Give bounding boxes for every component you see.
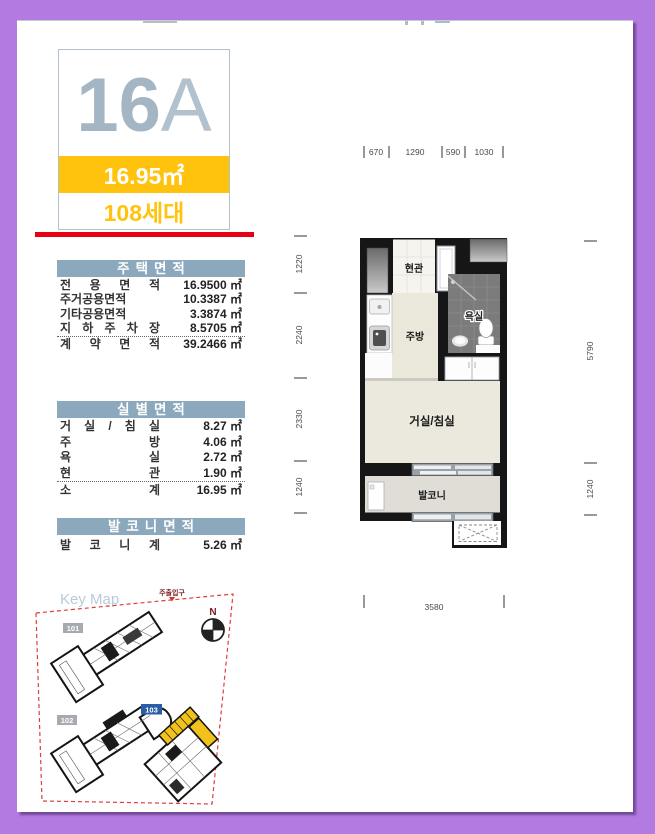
row-value: 8.27 ㎡ (203, 417, 242, 434)
cropped-text-remnant (421, 21, 424, 25)
closet-unit (367, 248, 388, 293)
table-row: 지 하 주 차 장 8.5705 ㎡ (57, 321, 245, 336)
dim-right-0: 5790 (585, 341, 595, 360)
sink-icon (452, 335, 469, 347)
balcony-area-table-title: 발코니면적 (57, 518, 245, 535)
row-label: 거 실 / 침 실 (60, 417, 160, 434)
building-102-label: 102 (61, 716, 74, 725)
dim-left-1: 2240 (294, 325, 304, 344)
row-label: 현 관 (60, 464, 160, 481)
outdoor-unit-bay (452, 521, 507, 548)
table-row: 거 실 / 침 실 8.27 ㎡ (57, 418, 245, 434)
row-value: 2.72 ㎡ (203, 448, 242, 465)
balcony-area-table: 발코니면적 발 코 니 계 5.26 ㎡ (57, 518, 245, 554)
row-value: 16.95 ㎡ (197, 481, 242, 498)
main-entrance-label: 주출입구 (159, 588, 185, 597)
row-label: 소 계 (60, 481, 160, 498)
row-value: 4.06 ㎡ (203, 433, 242, 450)
table-row: 욕 실 2.72 ㎡ (57, 449, 245, 465)
dim-right-1: 1240 (585, 479, 595, 498)
cropped-text-remnant (143, 21, 177, 23)
entrance-label: 현관 (405, 262, 424, 275)
row-label: 주 방 (60, 433, 160, 450)
table-row-total: 소 계 16.95 ㎡ (57, 481, 245, 497)
kitchen-counter (367, 295, 392, 353)
ac-unit-box (470, 239, 507, 262)
red-underline (35, 232, 254, 237)
table-row: 발 코 니 계 5.26 ㎡ (57, 535, 245, 554)
entrance-arrow-icon (169, 597, 175, 602)
unit-type-letter: A (161, 50, 212, 162)
dim-left-3: 1240 (294, 477, 304, 496)
cropped-text-remnant (435, 21, 450, 23)
row-value: 39.2466 ㎡ (183, 335, 242, 352)
housing-area-table: 주택면적 전 용 면 적 16.9500 ㎡ 주거공용면적 10.3387 ㎡ … (57, 260, 245, 351)
dim-left-2: 2330 (294, 409, 304, 428)
bath-mat (476, 345, 500, 353)
unit-info-box: 16A 16.95㎡ 108세대 (58, 49, 230, 230)
key-map: Key Map 주출입구 N 101 (30, 586, 260, 811)
key-map-title: Key Map (60, 591, 119, 608)
row-label: 욕 실 (60, 448, 160, 465)
room-area-table: 실별면적 거 실 / 침 실 8.27 ㎡ 주 방 4.06 ㎡ 욕 실 2.7… (57, 401, 245, 497)
kitchen-label: 주방 (406, 330, 425, 343)
unit-type-number: 16 (76, 50, 161, 162)
table-row-total: 계 약 면 적 39.2466 ㎡ (57, 336, 245, 351)
building-103-label: 103 (145, 706, 158, 715)
building-101-label: 101 (67, 624, 80, 633)
floor-plan: 670 1290 590 1030 1220 2240 2330 1240 57… (280, 131, 640, 621)
cropped-text-remnant (405, 21, 408, 25)
fridge-space (365, 353, 392, 381)
washer-space (368, 482, 384, 510)
dim-top-2: 590 (446, 147, 460, 157)
unit-household-count: 108세대 (59, 193, 229, 230)
dim-top-0: 670 (369, 147, 383, 157)
housing-area-table-title: 주택면적 (57, 260, 245, 277)
dimension-ticks-left (294, 236, 307, 513)
row-value: 8.5705 ㎡ (190, 319, 242, 336)
row-value: 1.90 ㎡ (203, 464, 242, 481)
shower-icon (451, 280, 455, 284)
dim-bottom-0: 3580 (425, 602, 444, 612)
living-room-label: 거실/침실 (409, 414, 455, 428)
balcony-label: 발코니 (418, 489, 446, 502)
row-label: 발 코 니 계 (60, 536, 160, 553)
table-row: 현 관 1.90 ㎡ (57, 465, 245, 481)
room-area-table-title: 실별면적 (57, 401, 245, 418)
balcony-window (412, 464, 493, 476)
building-101-footprint (51, 604, 168, 702)
dim-top-1: 1290 (406, 147, 425, 157)
row-label: 지 하 주 차 장 (60, 319, 160, 336)
table-row: 주 방 4.06 ㎡ (57, 434, 245, 450)
compass-north-label: N (209, 607, 216, 618)
unit-area-badge: 16.95㎡ (59, 156, 229, 193)
outer-window (412, 513, 493, 522)
unit-type: 16A (59, 50, 229, 156)
bathroom-label: 욕실 (465, 310, 483, 323)
dim-left-0: 1220 (294, 254, 304, 273)
threshold (365, 378, 438, 382)
dimension-ticks-right (584, 241, 597, 515)
row-value: 5.26 ㎡ (203, 536, 242, 553)
compass-icon: N (202, 607, 224, 641)
purple-frame: { "page": { "colors": { "frame_purple": … (0, 0, 655, 834)
wardrobe (445, 357, 499, 380)
brochure-page: 16A 16.95㎡ 108세대 주택면적 전 용 면 적 16.9500 ㎡ … (17, 20, 633, 812)
row-label: 계 약 면 적 (60, 335, 160, 352)
dim-top-3: 1030 (475, 147, 494, 157)
